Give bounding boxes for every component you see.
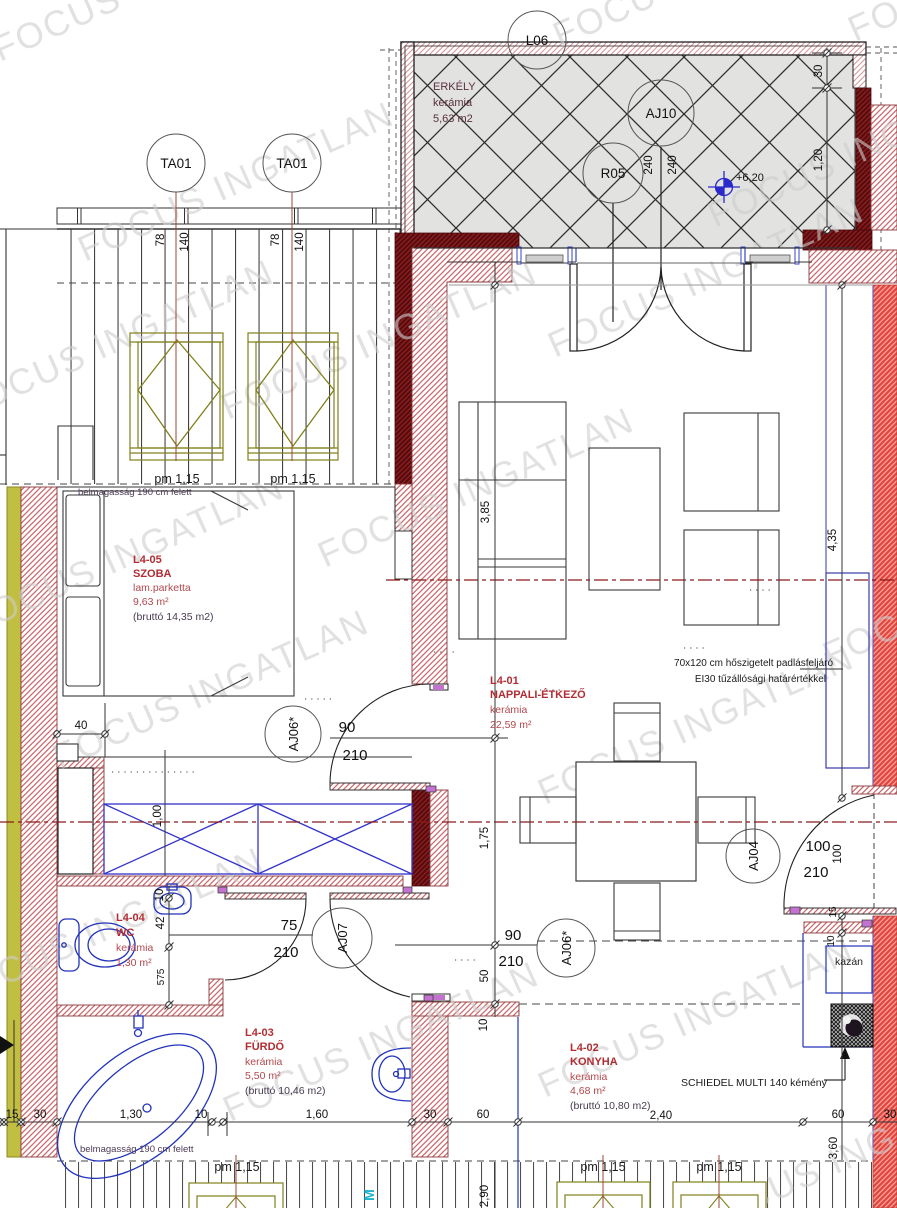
svg-text:belmagasság 190 cm felett: belmagasság 190 cm felett xyxy=(78,487,192,498)
svg-text:AJ04: AJ04 xyxy=(746,841,761,871)
svg-text:1,00: 1,00 xyxy=(152,805,164,827)
svg-text:240: 240 xyxy=(643,155,655,174)
svg-text:M: M xyxy=(361,1189,377,1201)
svg-text:kerámia: kerámia xyxy=(490,704,528,716)
svg-text:TA01: TA01 xyxy=(276,156,307,171)
svg-text:AJ06*: AJ06* xyxy=(559,931,574,966)
svg-text:575: 575 xyxy=(156,968,167,985)
svg-text:140: 140 xyxy=(179,232,191,251)
svg-text:2,90: 2,90 xyxy=(479,1185,491,1207)
svg-text:22,59 m²: 22,59 m² xyxy=(490,719,532,731)
svg-text:60: 60 xyxy=(477,1109,490,1121)
svg-text:+6,20: +6,20 xyxy=(736,172,764,184)
svg-text:kerámia: kerámia xyxy=(570,1071,608,1083)
svg-text:100: 100 xyxy=(832,844,844,863)
svg-text:lam.parketta: lam.parketta xyxy=(133,582,191,594)
svg-text:78: 78 xyxy=(270,234,282,247)
svg-text:10: 10 xyxy=(154,889,166,902)
svg-text:KONYHA: KONYHA xyxy=(570,1056,618,1068)
svg-text:90: 90 xyxy=(339,719,356,736)
svg-text:210: 210 xyxy=(342,747,367,764)
svg-text:70x120 cm hőszigetelt padlásfe: 70x120 cm hőszigetelt padlásfeljáró xyxy=(674,658,833,669)
svg-text:L06: L06 xyxy=(526,33,549,48)
svg-text:1,30 m²: 1,30 m² xyxy=(116,957,152,969)
svg-text:belmagasság 190 cm felett: belmagasság 190 cm felett xyxy=(80,1144,194,1155)
svg-text:15: 15 xyxy=(6,1109,19,1121)
svg-text:30: 30 xyxy=(34,1109,47,1121)
svg-text:1,60: 1,60 xyxy=(306,1109,328,1121)
svg-text:WC: WC xyxy=(116,927,134,939)
svg-text:50: 50 xyxy=(479,970,491,983)
svg-text:1,20: 1,20 xyxy=(813,149,825,171)
svg-text:pm 1,15: pm 1,15 xyxy=(214,1160,259,1174)
svg-text:10: 10 xyxy=(826,935,837,947)
svg-text:5,63 m2: 5,63 m2 xyxy=(433,113,473,125)
svg-text:AJ06*: AJ06* xyxy=(286,717,301,752)
svg-text:EI30 tűzállósági határértékkel: EI30 tűzállósági határértékkel xyxy=(695,674,826,685)
svg-text:kerámia: kerámia xyxy=(433,97,473,109)
svg-text:9,63 m²: 9,63 m² xyxy=(133,596,169,608)
svg-text:ERKÉLY: ERKÉLY xyxy=(433,80,476,93)
svg-text:42: 42 xyxy=(155,917,167,930)
svg-text:R05: R05 xyxy=(601,166,626,181)
svg-text:TA01: TA01 xyxy=(160,156,191,171)
svg-text:AJ10: AJ10 xyxy=(646,106,677,121)
svg-text:pm 1,15: pm 1,15 xyxy=(696,1160,741,1174)
svg-text:FÜRDŐ: FÜRDŐ xyxy=(245,1040,285,1053)
svg-text:40: 40 xyxy=(75,720,88,732)
svg-text:15: 15 xyxy=(828,906,839,918)
svg-text:3,60: 3,60 xyxy=(828,1137,840,1159)
svg-text:(bruttó 10,46 m2): (bruttó 10,46 m2) xyxy=(245,1085,326,1097)
svg-text:2,40: 2,40 xyxy=(650,1110,672,1122)
svg-text:NAPPALI-ÉTKEZŐ: NAPPALI-ÉTKEZŐ xyxy=(490,688,586,701)
svg-text:1,30: 1,30 xyxy=(120,1109,142,1121)
svg-text:75: 75 xyxy=(281,917,298,934)
svg-text:140: 140 xyxy=(294,232,306,251)
svg-text:L4-05: L4-05 xyxy=(133,554,162,566)
svg-text:L4-02: L4-02 xyxy=(570,1042,599,1054)
svg-text:78: 78 xyxy=(155,234,167,247)
svg-text:3,85: 3,85 xyxy=(480,501,492,523)
svg-text:30: 30 xyxy=(884,1109,897,1121)
svg-text:4,68 m²: 4,68 m² xyxy=(570,1085,606,1097)
svg-text:kerámia: kerámia xyxy=(116,942,154,954)
svg-text:pm 1,15: pm 1,15 xyxy=(270,472,315,486)
svg-text:90: 90 xyxy=(505,927,522,944)
svg-text:pm 1,15: pm 1,15 xyxy=(580,1160,625,1174)
svg-text:210: 210 xyxy=(273,944,298,961)
svg-text:5,50 m²: 5,50 m² xyxy=(245,1070,281,1082)
svg-text:30: 30 xyxy=(424,1109,437,1121)
svg-text:1,75: 1,75 xyxy=(479,827,491,849)
svg-text:210: 210 xyxy=(803,864,828,881)
svg-text:pm 1,15: pm 1,15 xyxy=(154,472,199,486)
svg-text:10: 10 xyxy=(195,1109,208,1121)
svg-text:SZOBA: SZOBA xyxy=(133,568,172,580)
svg-text:L4-03: L4-03 xyxy=(245,1027,274,1039)
svg-text:AJ07: AJ07 xyxy=(335,923,350,953)
svg-text:SCHIEDEL MULTI 140 kémény: SCHIEDEL MULTI 140 kémény xyxy=(681,1077,828,1089)
svg-text:210: 210 xyxy=(498,953,523,970)
svg-text:100: 100 xyxy=(805,838,830,855)
svg-text:kazán: kazán xyxy=(835,956,863,968)
svg-text:4,35: 4,35 xyxy=(827,529,839,551)
svg-text:(bruttó 10,80 m2): (bruttó 10,80 m2) xyxy=(570,1100,651,1112)
svg-text:10: 10 xyxy=(478,1019,490,1032)
svg-text:kerámia: kerámia xyxy=(245,1056,283,1068)
svg-text:30: 30 xyxy=(813,65,825,78)
svg-text:(bruttó 14,35 m2): (bruttó 14,35 m2) xyxy=(133,611,214,623)
svg-text:L4-04: L4-04 xyxy=(116,912,146,924)
svg-text:L4-01: L4-01 xyxy=(490,675,519,687)
svg-text:240: 240 xyxy=(667,155,679,174)
